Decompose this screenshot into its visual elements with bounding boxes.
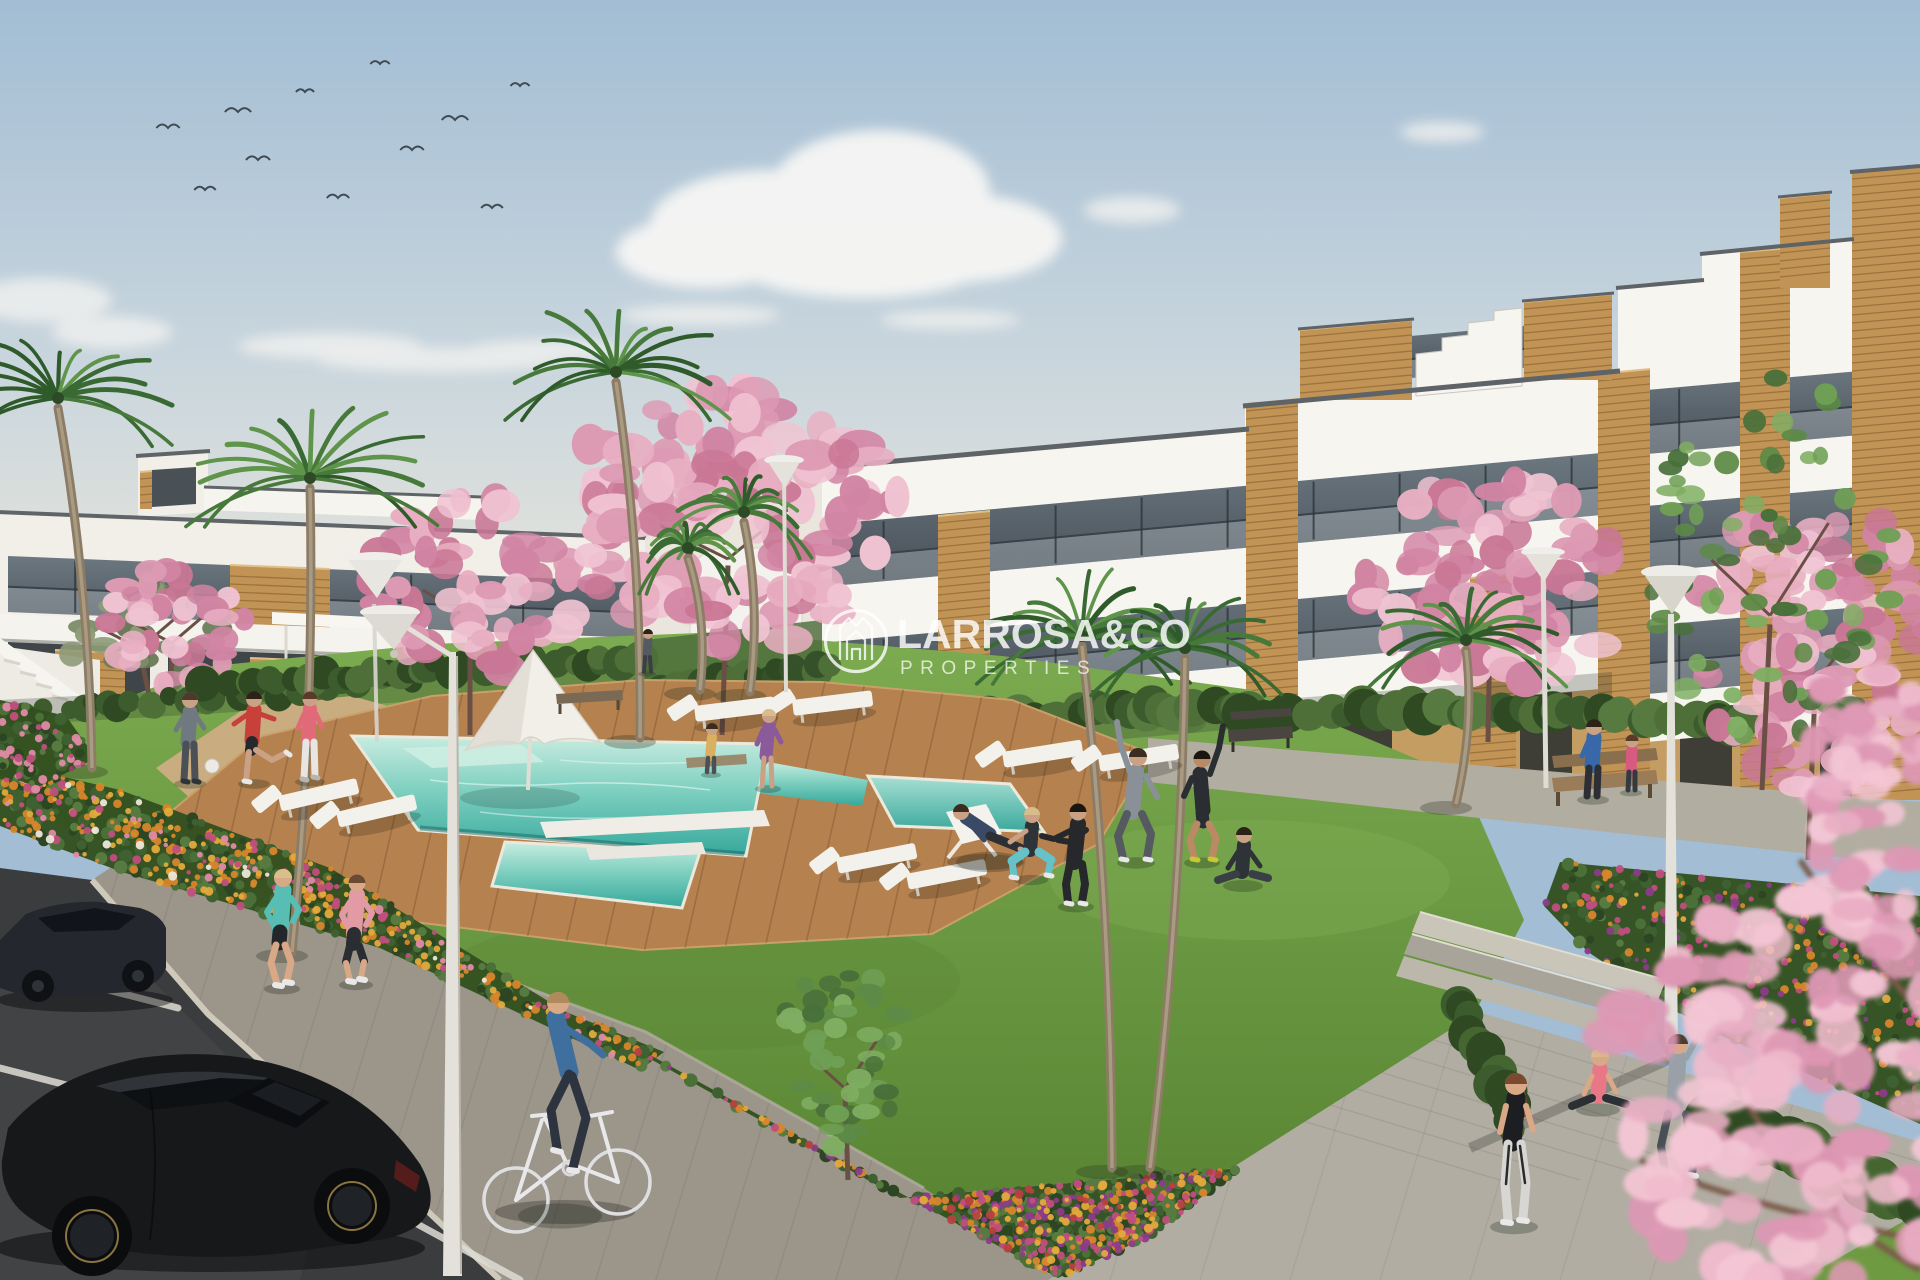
- ball: [205, 759, 219, 773]
- render-image: LARROSA&CO PROPERTIES: [0, 0, 1920, 1280]
- parked-sedan: [0, 902, 173, 1012]
- watermark-brand: LARROSA&CO: [897, 611, 1191, 657]
- watermark-tagline: PROPERTIES: [900, 658, 1097, 679]
